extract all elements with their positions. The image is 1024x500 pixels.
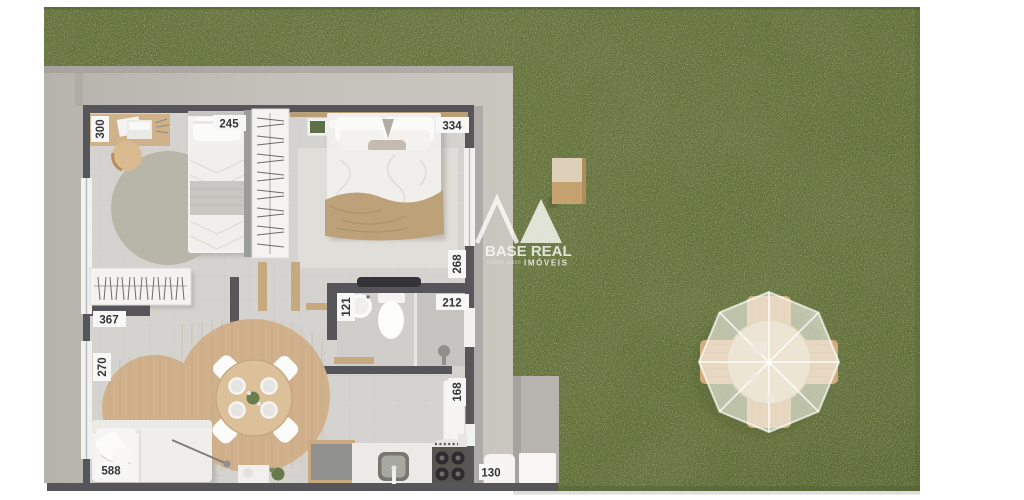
svg-text:588: 588 (101, 466, 121, 478)
svg-text:CRECI J1865: CRECI J1865 (487, 260, 521, 266)
svg-text:121: 121 (341, 297, 353, 317)
svg-text:367: 367 (99, 315, 118, 327)
svg-text:IMÓVEIS: IMÓVEIS (524, 259, 569, 268)
svg-text:300: 300 (95, 119, 107, 138)
svg-text:BASE REAL: BASE REAL (485, 243, 572, 260)
svg-text:245: 245 (219, 119, 239, 131)
svg-text:212: 212 (442, 298, 461, 310)
svg-text:334: 334 (442, 121, 462, 133)
svg-text:268: 268 (452, 254, 464, 274)
svg-text:168: 168 (452, 382, 464, 402)
svg-text:270: 270 (97, 357, 109, 376)
svg-text:130: 130 (481, 468, 500, 480)
